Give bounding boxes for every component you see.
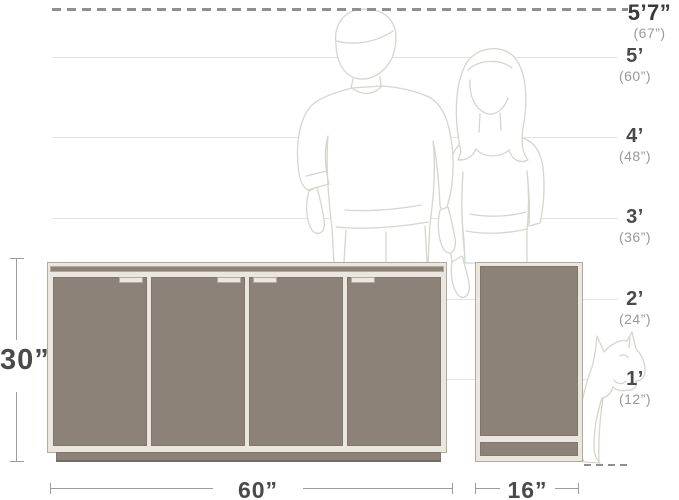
width-dim-line-right: [303, 488, 453, 489]
door-handle: [351, 277, 375, 283]
side-panel-base: [480, 442, 578, 456]
width-dimension-label: 60”: [213, 477, 303, 500]
height-label-inches: (12”): [610, 392, 660, 407]
height-label-5ft: 5’ (60”): [610, 46, 660, 84]
grid-dashed-line-5ft7: [52, 8, 628, 11]
man-figure: [298, 9, 456, 263]
height-label-feet: 4’: [610, 126, 660, 147]
door-handle: [253, 277, 277, 283]
cabinet-front-view: [47, 262, 447, 453]
woman-figure: [447, 49, 544, 298]
height-label-feet: 5’7”: [620, 1, 679, 24]
width-dim-tick-left: [50, 483, 51, 494]
height-label-inches: (36”): [610, 230, 660, 245]
height-label-inches: (67”): [620, 26, 679, 41]
depth-dim-line-right: [555, 488, 579, 489]
height-dim-tick-top: [10, 258, 24, 259]
height-label-inches: (24”): [610, 312, 660, 327]
height-label-4ft: 4’ (48”): [610, 126, 660, 164]
depth-dimension-label: 16”: [500, 477, 555, 500]
height-dim-line-lower: [16, 392, 17, 462]
height-label-1ft: 1’ (12”): [610, 369, 660, 407]
cabinet-door-2: [151, 277, 245, 446]
depth-dim-tick-left: [475, 483, 476, 494]
height-dim-line-upper: [16, 258, 17, 340]
side-panel: [480, 266, 578, 436]
cabinet-door-4: [347, 277, 441, 446]
width-dim-tick-right: [452, 483, 453, 494]
height-label-feet: 3’: [610, 207, 660, 228]
height-label-3ft: 3’ (36”): [610, 207, 660, 245]
height-label-inches: (48”): [610, 149, 660, 164]
height-label-2ft: 2’ (24”): [610, 289, 660, 327]
height-dimension-label: 30”: [0, 344, 40, 377]
height-label-5ft7: 5’7” (67”): [620, 1, 679, 41]
cabinet-side-view: [475, 262, 583, 462]
cabinet-top-rail: [50, 266, 444, 272]
height-label-feet: 2’: [610, 289, 660, 310]
height-label-inches: (60”): [610, 69, 660, 84]
dimension-diagram: 30” 60” 16” 5’7” (67”) 5’ (60”) 4’ (48”)…: [0, 0, 679, 500]
depth-dim-tick-right: [578, 483, 579, 494]
door-handle: [217, 277, 241, 283]
door-handle: [119, 277, 143, 283]
height-label-feet: 1’: [610, 369, 660, 390]
height-label-feet: 5’: [610, 46, 660, 67]
cabinet-door-1: [53, 277, 147, 446]
cabinet-plinth: [56, 452, 441, 462]
depth-dim-line-left: [475, 488, 500, 489]
floor-dashed-line: [584, 464, 628, 466]
height-dim-tick-bottom: [10, 461, 24, 462]
cabinet-doors: [53, 277, 441, 446]
width-dim-line-left: [50, 488, 213, 489]
cabinet-door-3: [249, 277, 343, 446]
